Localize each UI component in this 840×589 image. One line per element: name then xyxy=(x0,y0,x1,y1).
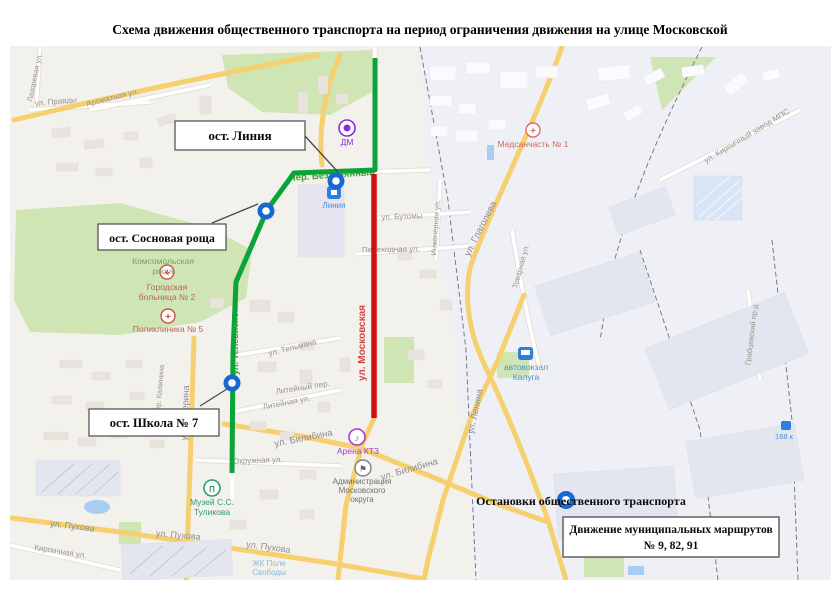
callout-label-liniya: ост. Линия xyxy=(208,128,271,143)
medical-cross-glyph: + xyxy=(165,312,171,323)
park-label-1: Комсомольская xyxy=(132,256,194,266)
poi-label-zhk-1: ЖК Поле xyxy=(252,559,286,568)
poi-label-avtovokzal-1: автовокзал xyxy=(504,362,548,372)
store-icon-detail xyxy=(331,190,337,195)
park-label-2: роща xyxy=(152,266,173,276)
street-label-butomy: ул. Бутомы xyxy=(381,211,423,221)
bus-station-icon-detail xyxy=(521,350,530,355)
poi-label-admin-1: Администрация xyxy=(333,477,392,486)
map-canvas: ул. Правды Ароматная ул. Лазоревая ул. у… xyxy=(0,0,840,589)
poi-label-medsanchast: Медсанчасть № 1 xyxy=(498,139,569,149)
flag-icon-glyph: ⚑ xyxy=(359,464,367,474)
music-icon-glyph: ♪ xyxy=(355,433,360,443)
legend-routes-line2: № 9, 82, 91 xyxy=(644,540,699,552)
dm-icon-dot xyxy=(344,125,351,132)
stop-marker-liniya xyxy=(328,173,345,190)
poi-label-admin-2: Московского xyxy=(339,486,386,495)
poi-label-muzey-1: Музей С.С. xyxy=(190,497,234,507)
poi-label-poliklinika: Поликлиника № 5 xyxy=(133,324,204,334)
legend-routes-line1: Движение муниципальных маршрутов xyxy=(569,524,772,536)
street-label-moskovskaya: ул. Московская xyxy=(357,305,368,381)
poi-label-liniya: Линия xyxy=(323,201,346,210)
stop-marker-sosnovaya xyxy=(258,203,275,220)
poi-label-muzey-2: Туликова xyxy=(194,507,230,517)
poi-label-km168: 168 к xyxy=(775,432,794,441)
poi-label-hospital-2: больница № 2 xyxy=(139,292,196,302)
street-label-perekhodnaya: Переходная ул. xyxy=(362,244,420,254)
poi-label-admin-3: округа xyxy=(350,495,374,504)
poi-label-arena: Арена КТЗ xyxy=(337,446,379,456)
stop-marker-hole xyxy=(228,379,236,387)
poi-label-avtovokzal-2: Калуга xyxy=(513,372,540,382)
poi-dm: ДМ xyxy=(339,120,355,147)
stop-marker-hole xyxy=(262,207,270,215)
poi-label-dm: ДМ xyxy=(341,137,354,147)
legend-stops-label: Остановки общественного транспорта xyxy=(476,494,686,508)
poi-label-zhk-2: Свободы xyxy=(252,568,286,577)
medical-cross-glyph: + xyxy=(530,126,536,137)
platform-icon xyxy=(781,421,791,430)
callout-label-sosnovaya: ост. Сосновая роща xyxy=(109,231,215,245)
stop-marker-hole xyxy=(332,177,340,185)
poi-zhk: ЖК Поле Свободы xyxy=(252,559,286,577)
street-label-okruzhnaya: Окружная ул. xyxy=(233,455,283,466)
callout-label-shkola: ост. Школа № 7 xyxy=(110,416,198,430)
transport-scheme-page: Схема движения общественного транспорта … xyxy=(0,0,840,589)
poi-label-hospital-1: Городская xyxy=(147,282,188,292)
museum-icon-glyph: П xyxy=(209,485,215,494)
